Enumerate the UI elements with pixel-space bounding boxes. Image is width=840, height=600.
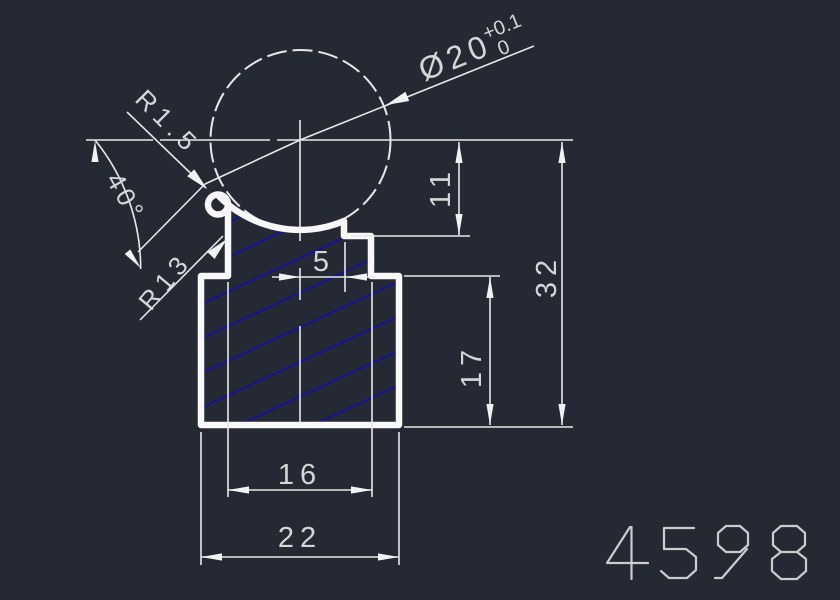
svg-text:11: 11 xyxy=(425,166,457,208)
svg-text:32: 32 xyxy=(531,254,563,298)
svg-text:17: 17 xyxy=(456,344,488,388)
svg-text:5: 5 xyxy=(313,246,329,278)
svg-text:16: 16 xyxy=(278,459,322,491)
svg-text:22: 22 xyxy=(278,522,322,554)
